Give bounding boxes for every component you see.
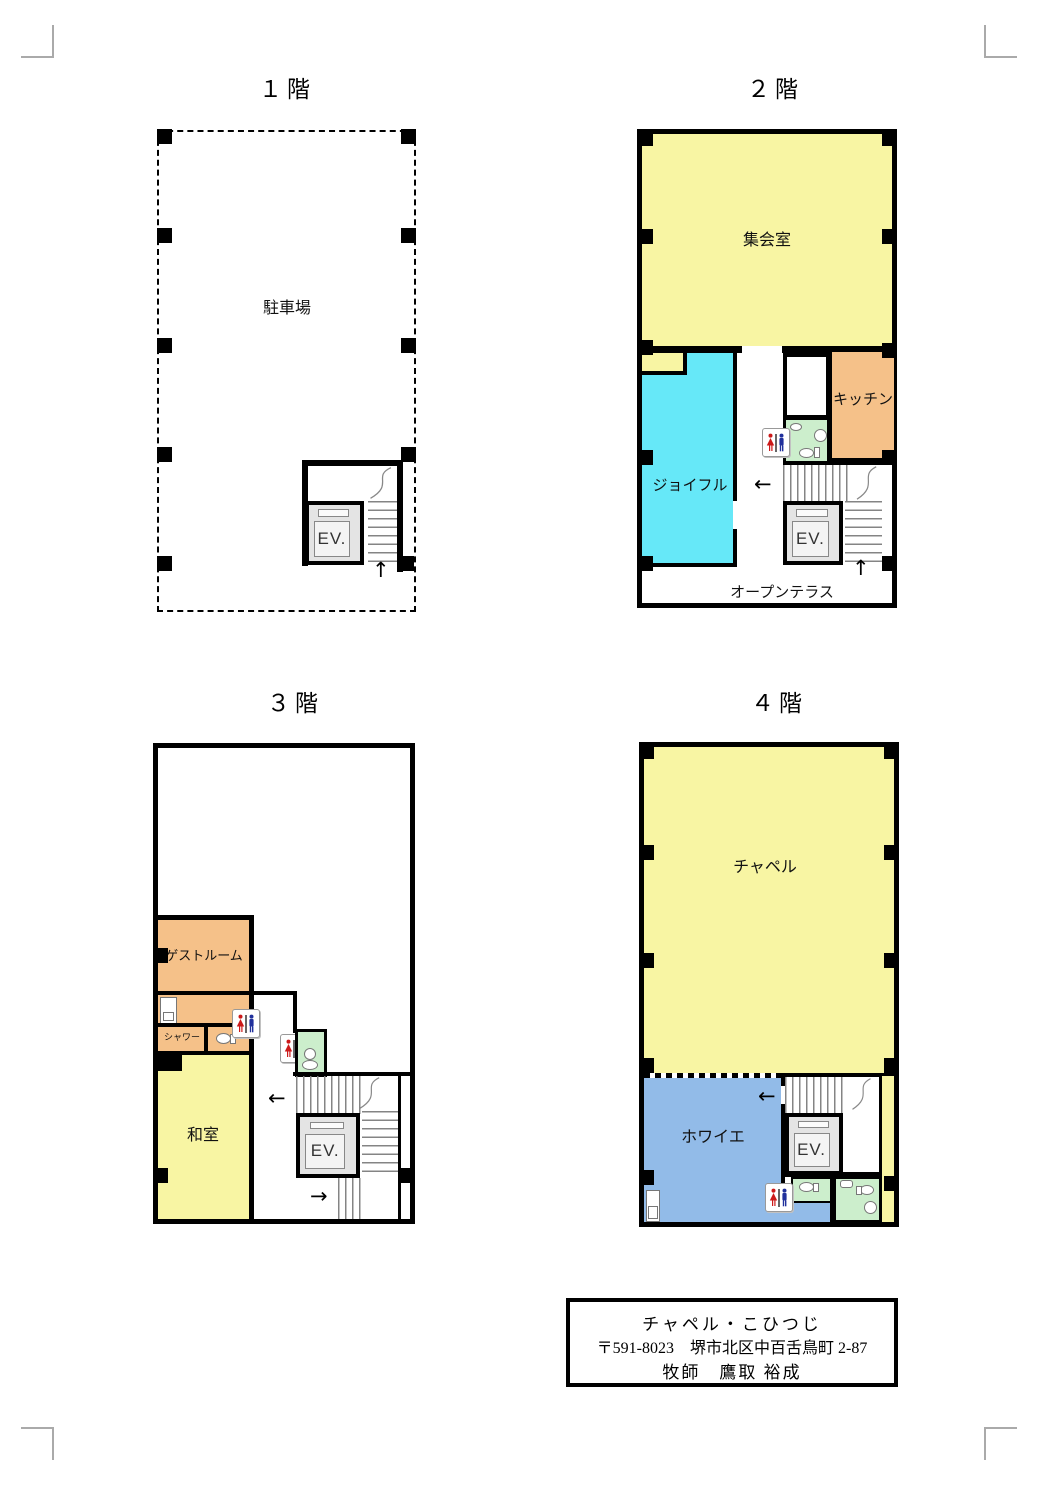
- elevator: EV.: [783, 501, 843, 565]
- wash-basin: [864, 1201, 877, 1214]
- toilet: [216, 1033, 231, 1044]
- pillar: [882, 556, 897, 571]
- stairs: [338, 1178, 363, 1219]
- corridor-wall: [249, 915, 254, 1219]
- toilet: [860, 1185, 874, 1195]
- crop-mark-bottom-left: [52, 1427, 54, 1460]
- building-name: チャペル・こひつじ: [570, 1310, 894, 1335]
- elevator-label: EV.: [311, 1141, 340, 1161]
- pastor-name: 牧師 鷹取 裕成: [570, 1358, 894, 1383]
- stair-path-curve: [849, 465, 881, 501]
- door-opening: [733, 501, 737, 529]
- pillar: [638, 556, 653, 571]
- left-arrow-icon: ←: [268, 1088, 286, 1109]
- bed-pillow: [163, 1012, 174, 1021]
- elevator-car: EV.: [792, 521, 829, 556]
- stairs: [368, 501, 397, 563]
- pillar: [639, 953, 654, 968]
- building-info-box: チャペル・こひつじ 〒591-8023 堺市北区中百舌鳥町 2-87 牧師 鷹取…: [566, 1298, 898, 1387]
- guest-room-label: ゲストルーム: [160, 948, 248, 964]
- pillar: [638, 131, 653, 146]
- door-opening: [742, 346, 782, 353]
- hall-wall: [253, 991, 297, 995]
- pillar: [157, 228, 172, 243]
- pillar: [882, 131, 897, 146]
- toilet-tank: [814, 447, 820, 458]
- storage-room: [783, 353, 830, 419]
- pillar: [401, 338, 416, 353]
- up-arrow-icon: ↑: [372, 560, 390, 581]
- sink: [790, 423, 802, 431]
- elevator-car: EV.: [305, 1134, 345, 1170]
- pillar: [884, 845, 899, 860]
- pillar: [639, 1170, 654, 1185]
- chapel-side-strip: [882, 1076, 894, 1222]
- crop-mark-bottom-right: [984, 1427, 1017, 1429]
- floor1-title: １階: [232, 70, 342, 104]
- pillar: [638, 450, 653, 465]
- restroom-icon: [765, 1183, 793, 1212]
- toilet-tank: [856, 1186, 862, 1195]
- joyful-room-wall: [733, 353, 737, 567]
- stair-path-curve: [845, 1077, 875, 1111]
- up-arrow-icon: ↑: [852, 558, 870, 579]
- shower-label: シャワー: [160, 1032, 204, 1043]
- parking-label: 駐車場: [237, 299, 337, 318]
- pillar: [884, 953, 899, 968]
- pillar: [638, 340, 653, 355]
- elevator-label: EV.: [318, 529, 347, 549]
- elevator-counterweight: [796, 509, 828, 516]
- stair-path-curve: [352, 1076, 384, 1110]
- toilet: [799, 1182, 814, 1192]
- stairs: [362, 1111, 398, 1175]
- toilet-tank: [813, 1183, 819, 1192]
- elevator-label: EV.: [797, 1140, 826, 1160]
- crop-mark-top-left: [21, 56, 54, 58]
- hall-wall: [293, 991, 297, 1033]
- pillar: [882, 450, 897, 465]
- right-arrow-icon: →: [310, 1186, 328, 1207]
- wash-basin: [814, 429, 827, 442]
- pillar: [153, 1168, 168, 1183]
- stair-wall: [398, 1076, 401, 1220]
- elevator: EV.: [785, 1113, 843, 1175]
- left-arrow-icon: ←: [754, 474, 772, 495]
- elevator-counterweight: [318, 509, 350, 516]
- elevator-car: EV.: [314, 521, 351, 556]
- pillar: [639, 845, 654, 860]
- toilet: [304, 1048, 316, 1060]
- foyer-label: ホワイエ: [658, 1128, 768, 1147]
- japanese-room-label: 和室: [168, 1126, 238, 1145]
- joyful-room: [642, 353, 737, 567]
- open-terrace-label: オープンテラス: [727, 584, 837, 602]
- floor-plan-page: １階 ２階 ３階 ４階 駐車場 EV. ↑ 集会室 ジョイフル キッチン: [0, 0, 1045, 1491]
- pillar: [639, 1058, 654, 1073]
- pillar: [157, 556, 172, 571]
- left-arrow-icon: ←: [758, 1086, 776, 1107]
- floor2-title: ２階: [720, 70, 830, 104]
- pillar: [401, 129, 416, 144]
- elevator-counterweight: [798, 1121, 829, 1128]
- elevator: EV.: [296, 1113, 360, 1178]
- toilet: [302, 1060, 318, 1070]
- kitchen-label: キッチン: [832, 391, 894, 409]
- pillar: [401, 228, 416, 243]
- guest-room-wall: [158, 991, 249, 995]
- stair-path-curve: [362, 466, 396, 500]
- meeting-room-label: 集会室: [717, 231, 817, 250]
- pillar: [882, 229, 897, 244]
- pillar-notch: [158, 1055, 182, 1071]
- pillar: [157, 129, 172, 144]
- stairs: [785, 1077, 847, 1113]
- pillar: [884, 1176, 899, 1191]
- kitchen-dashed-wall: [832, 347, 882, 352]
- floor3-title: ３階: [240, 684, 350, 718]
- crop-mark-top-right: [984, 56, 1017, 58]
- crop-mark-top-left: [52, 25, 54, 58]
- stair-wall: [397, 460, 403, 572]
- cabinet-cell: [648, 1206, 658, 1219]
- pillar: [884, 744, 899, 759]
- crop-mark-bottom-right: [984, 1427, 986, 1460]
- elevator: EV.: [305, 501, 364, 565]
- pillar: [401, 447, 416, 462]
- joyful-room-label: ジョイフル: [647, 477, 733, 495]
- elevator-counterweight: [310, 1122, 345, 1129]
- pillar: [884, 1058, 899, 1073]
- crop-mark-top-right: [984, 25, 986, 58]
- pillar: [153, 948, 168, 963]
- elevator-label: EV.: [796, 529, 825, 549]
- crop-mark-bottom-left: [21, 1427, 54, 1429]
- sink: [840, 1180, 853, 1188]
- pillar: [882, 343, 897, 358]
- pillar: [157, 447, 172, 462]
- restroom-icon: [762, 428, 790, 457]
- yellow-alcove: [642, 353, 687, 375]
- floor4-title: ４階: [724, 684, 834, 718]
- joyful-room-wall: [642, 563, 737, 567]
- stairs: [845, 501, 882, 563]
- pillar: [638, 229, 653, 244]
- stairs: [783, 465, 849, 502]
- toilet-divider-wall: [830, 1177, 834, 1222]
- toilet: [799, 448, 814, 458]
- restroom-icon: [232, 1009, 260, 1038]
- pillar: [639, 744, 654, 759]
- pillar: [157, 338, 172, 353]
- elevator-car: EV.: [794, 1133, 830, 1167]
- building-address: 〒591-8023 堺市北区中百舌鳥町 2-87: [570, 1334, 894, 1358]
- chapel-label: チャペル: [710, 858, 820, 877]
- chapel-room: [644, 747, 894, 1073]
